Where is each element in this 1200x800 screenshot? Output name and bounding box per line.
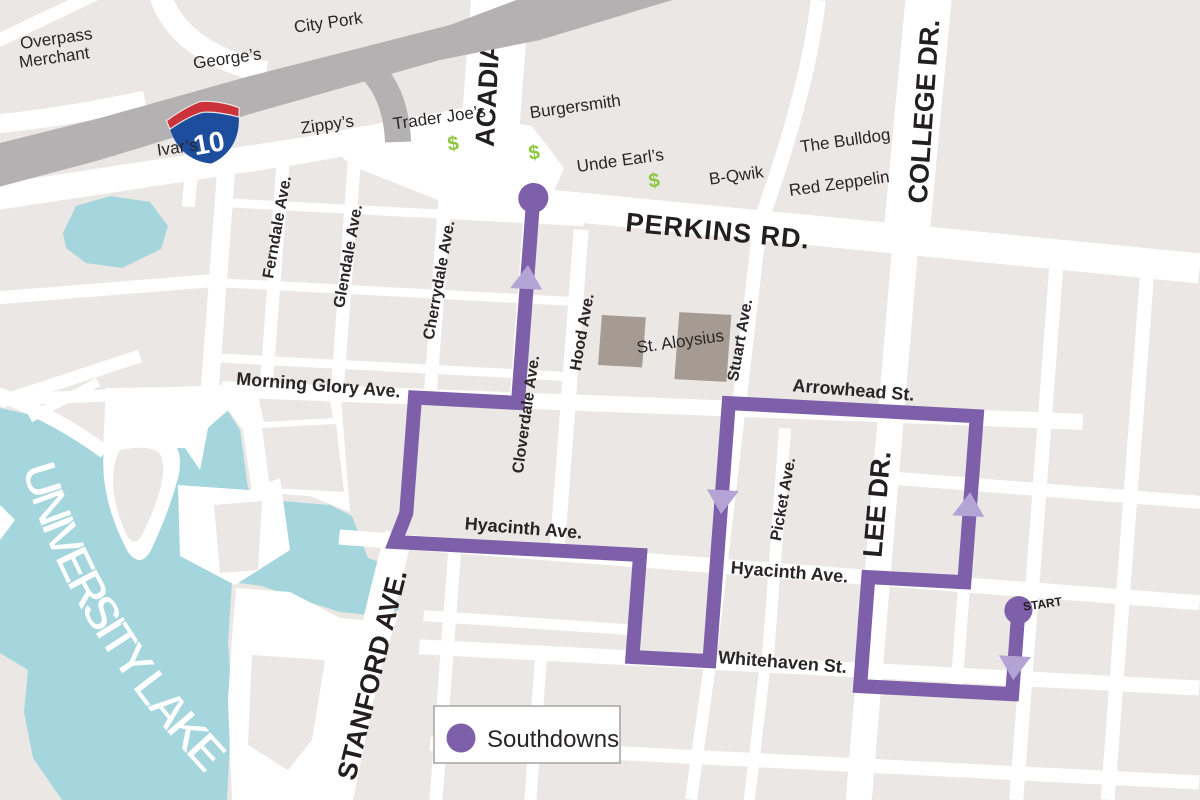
svg-text:Southdowns: Southdowns: [487, 726, 619, 753]
